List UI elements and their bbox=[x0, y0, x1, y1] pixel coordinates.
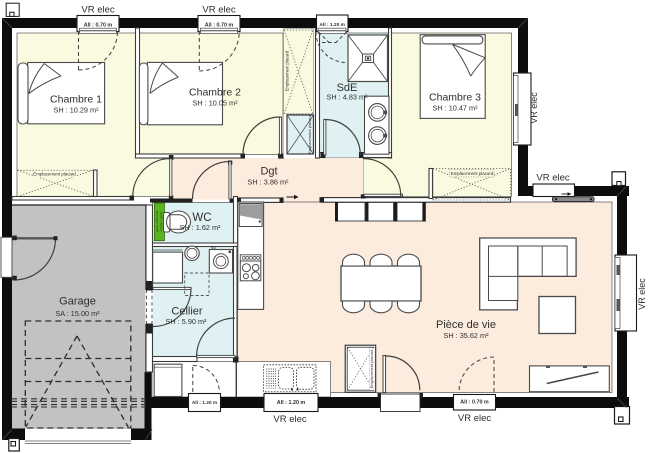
svg-text:Chambre 1: Chambre 1 bbox=[50, 94, 102, 106]
svg-text:VR elec: VR elec bbox=[637, 278, 647, 310]
svg-text:SH : 10.29 m²: SH : 10.29 m² bbox=[53, 106, 99, 115]
svg-text:Chambre 3: Chambre 3 bbox=[429, 92, 481, 104]
svg-text:VR elec: VR elec bbox=[529, 92, 539, 124]
svg-text:All : 0.70 m: All : 0.70 m bbox=[460, 399, 489, 405]
svg-text:SH : 35.62 m²: SH : 35.62 m² bbox=[443, 331, 489, 340]
svg-text:VR elec: VR elec bbox=[202, 5, 236, 16]
svg-text:All : 0.70 m: All : 0.70 m bbox=[84, 23, 113, 29]
svg-text:60: 60 bbox=[211, 245, 217, 250]
svg-text:Garage: Garage bbox=[59, 296, 96, 308]
svg-text:VR elec: VR elec bbox=[81, 5, 115, 16]
svg-text:SH : 5.90 m²: SH : 5.90 m² bbox=[166, 317, 208, 326]
svg-text:Dgt: Dgt bbox=[260, 166, 277, 178]
svg-text:Emplacement placard: Emplacement placard bbox=[369, 350, 374, 389]
svg-text:Emplacement placard: Emplacement placard bbox=[307, 115, 312, 154]
svg-text:VR elec: VR elec bbox=[536, 173, 570, 184]
svg-text:Emplacement placard: Emplacement placard bbox=[285, 50, 290, 91]
svg-text:All : 1.20 m: All : 1.20 m bbox=[277, 400, 306, 406]
svg-text:VR elec: VR elec bbox=[458, 413, 492, 424]
svg-text:SH : 1.62 m²: SH : 1.62 m² bbox=[180, 223, 222, 232]
svg-text:All : 1.20 m: All : 1.20 m bbox=[192, 400, 217, 406]
svg-text:VR elec: VR elec bbox=[273, 414, 307, 425]
svg-text:SH : 3.86 m²: SH : 3.86 m² bbox=[248, 178, 290, 187]
svg-text:SH : 10.47 m²: SH : 10.47 m² bbox=[432, 104, 478, 113]
svg-text:SA : 15.00 m²: SA : 15.00 m² bbox=[55, 309, 100, 318]
svg-text:Emplacement placard: Emplacement placard bbox=[33, 172, 76, 177]
svg-text:Emplacement placard: Emplacement placard bbox=[451, 171, 494, 176]
svg-text:Cellier: Cellier bbox=[171, 306, 203, 318]
svg-text:All : 0.70 m: All : 0.70 m bbox=[205, 23, 234, 29]
svg-text:SH : 4.83 m²: SH : 4.83 m² bbox=[327, 93, 369, 102]
svg-text:s/hotte 1 gaine: s/hotte 1 gaine bbox=[159, 211, 163, 231]
svg-text:SH : 10.05 m²: SH : 10.05 m² bbox=[192, 99, 238, 108]
svg-text:All : 1.20 m: All : 1.20 m bbox=[320, 22, 345, 28]
svg-text:Chambre 2: Chambre 2 bbox=[189, 87, 241, 99]
svg-text:Pièce de vie: Pièce de vie bbox=[436, 319, 496, 331]
